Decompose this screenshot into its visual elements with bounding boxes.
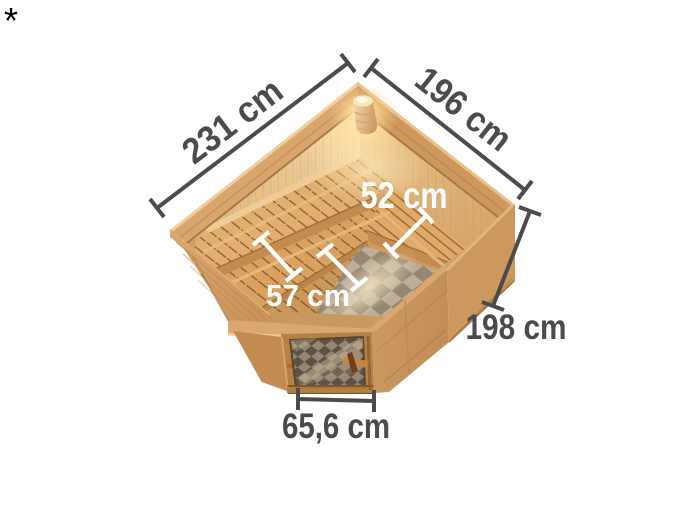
svg-text:*: * <box>4 0 18 41</box>
svg-text:52 cm: 52 cm <box>361 175 448 216</box>
svg-text:65,6 cm: 65,6 cm <box>282 407 390 446</box>
svg-text:57 cm: 57 cm <box>266 278 350 313</box>
svg-text:198 cm: 198 cm <box>466 308 567 347</box>
